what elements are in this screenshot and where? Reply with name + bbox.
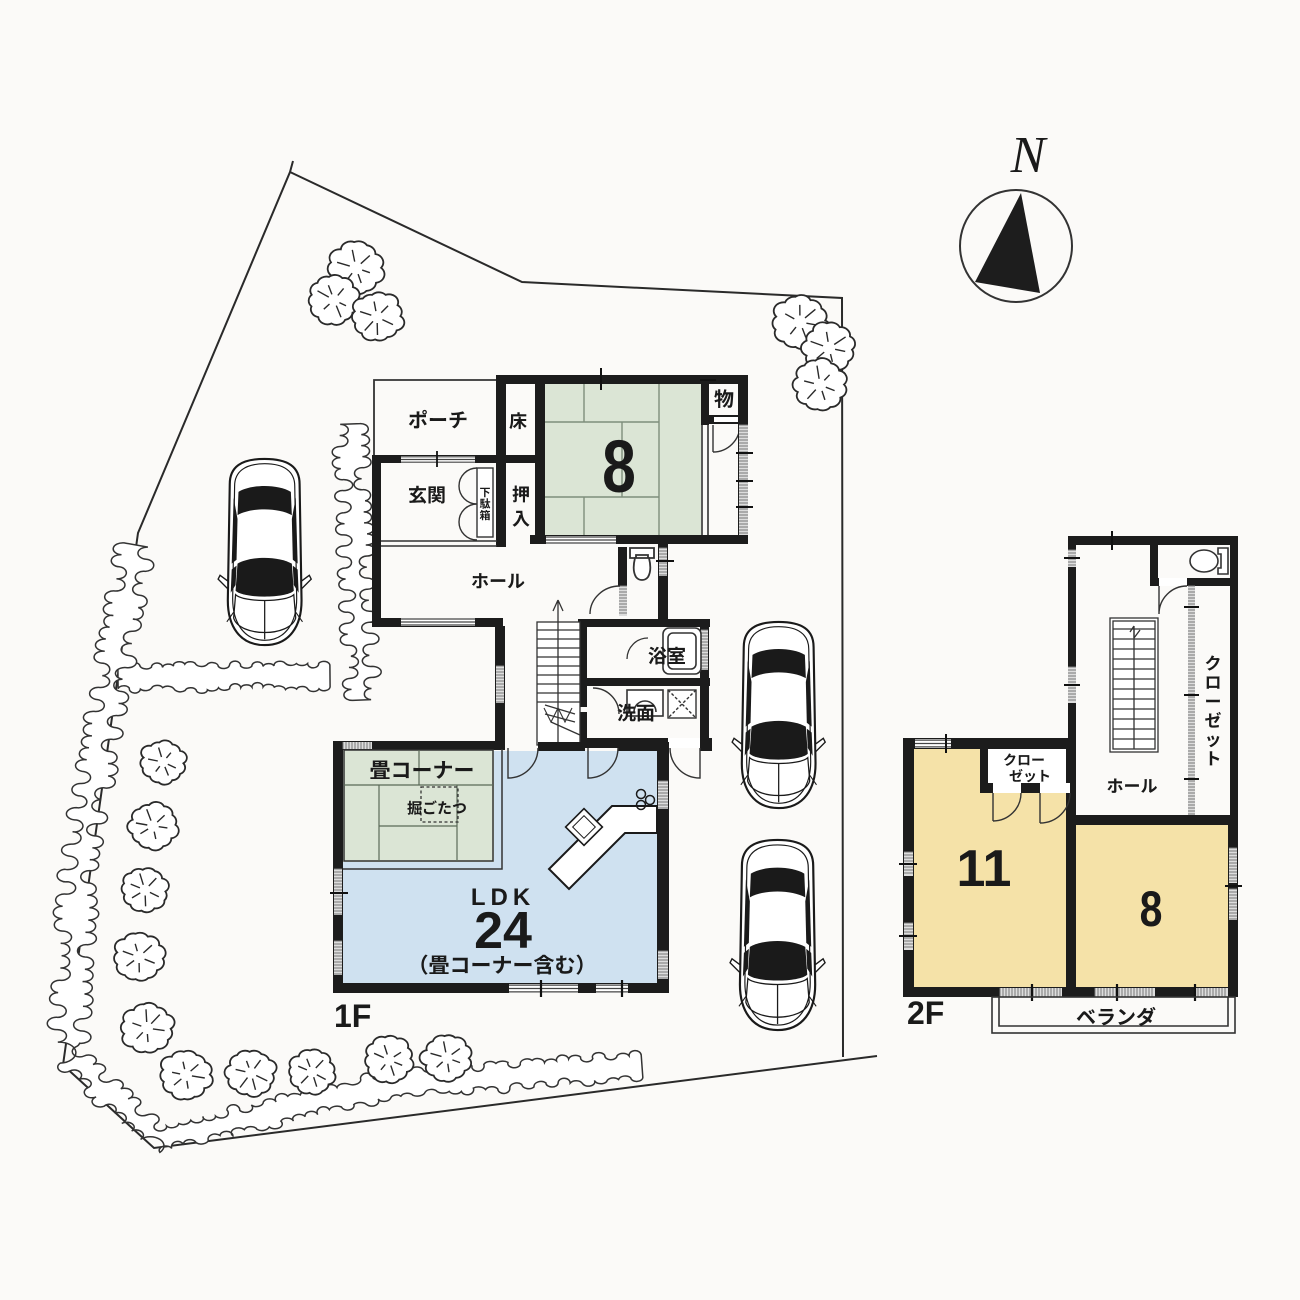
svg-text:24: 24 (474, 902, 532, 960)
svg-text:2F: 2F (907, 995, 944, 1031)
svg-text:11: 11 (957, 840, 1012, 898)
svg-text:1F: 1F (334, 998, 371, 1034)
svg-text:N: N (1010, 127, 1049, 184)
svg-text:8: 8 (602, 426, 636, 508)
svg-text:8: 8 (1140, 881, 1163, 937)
